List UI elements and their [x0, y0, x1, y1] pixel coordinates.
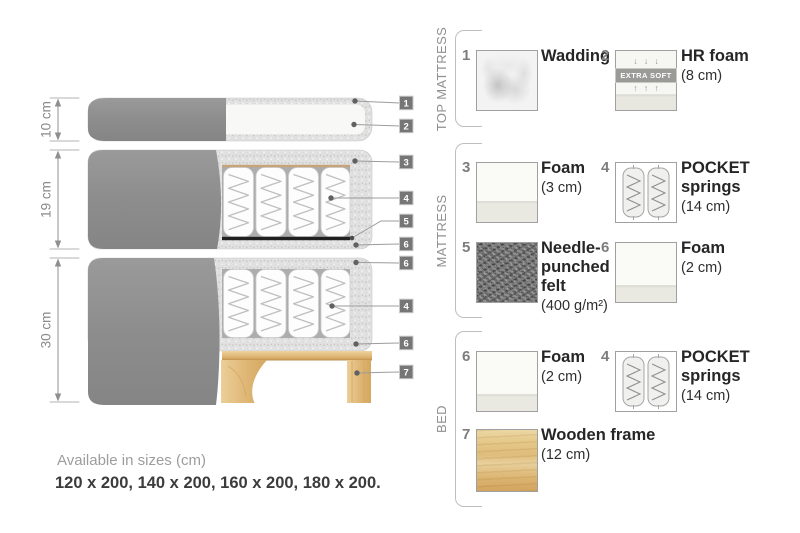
- fabric-cover-mattress: [88, 150, 221, 249]
- section-label-top-mattress: TOP MATTRESS: [434, 19, 450, 139]
- svg-text:2: 2: [404, 122, 409, 133]
- swatch-felt: [476, 242, 538, 303]
- swatch-pocket-springs: [615, 351, 677, 412]
- dimension-10cm: 10 cm: [39, 98, 80, 141]
- section-label-mattress: MATTRESS: [434, 171, 450, 291]
- wooden-leg-left: [221, 360, 267, 403]
- legend-name: POCKET springs: [681, 159, 761, 197]
- wooden-leg-right: [347, 360, 371, 403]
- legend-item-pocket-springs: POCKET springs (14 cm): [681, 159, 761, 217]
- wooden-frame-drawing: [221, 351, 372, 403]
- dimension-label-30cm: 30 cm: [39, 312, 54, 349]
- extra-soft-badge: EXTRA SOFT: [615, 68, 676, 83]
- swatch-foam-2cm: [615, 242, 677, 303]
- available-sizes-title: Available in sizes (cm): [57, 452, 206, 469]
- swatch-pocket-springs: [615, 162, 677, 223]
- svg-text:7: 7: [404, 368, 409, 379]
- dimension-label-19cm: 19 cm: [39, 181, 54, 218]
- section-label-bed: BED: [434, 359, 450, 479]
- legend-size: (12 cm): [541, 447, 711, 464]
- felt-layer-line: [222, 237, 350, 240]
- swatch-wadding: [476, 50, 538, 111]
- legend-number-5: 5: [462, 240, 470, 255]
- swatch-foam-3cm: [476, 162, 538, 223]
- svg-text:6: 6: [404, 240, 409, 251]
- legend-size: (400 g/m²): [541, 298, 609, 315]
- dimension-19cm: 19 cm: [39, 150, 80, 249]
- legend-name: POCKET springs: [681, 348, 761, 386]
- legend-number-6: 6: [601, 240, 609, 255]
- legend-name: Wooden frame: [541, 426, 711, 445]
- extra-soft-stack: ↓ ↓ ↓ EXTRA SOFT ↑ ↑ ↑: [616, 51, 676, 94]
- arrows-down-icon: ↓ ↓ ↓: [631, 57, 660, 67]
- dimension-30cm: 30 cm: [39, 258, 80, 402]
- legend-name: Needle-punched felt: [541, 239, 609, 296]
- svg-text:4: 4: [404, 302, 410, 313]
- svg-text:6: 6: [404, 339, 409, 350]
- legend-size: (14 cm): [681, 388, 761, 405]
- legend-number-4b: 4: [601, 349, 609, 364]
- available-sizes-list: 120 x 200, 140 x 200, 160 x 200, 180 x 2…: [55, 474, 381, 493]
- legend-item-wooden-frame: Wooden frame (12 cm): [541, 426, 711, 465]
- legend-size: (3 cm): [541, 180, 611, 197]
- swatch-hr-foam: ↓ ↓ ↓ EXTRA SOFT ↑ ↑ ↑: [615, 50, 677, 111]
- legend-size: (2 cm): [681, 260, 761, 277]
- legend-number-4: 4: [601, 160, 609, 175]
- pocket-springs-icon: [616, 352, 676, 411]
- bed-base-drawing: [88, 258, 372, 405]
- legend-number-7: 7: [462, 427, 470, 442]
- legend-size: (14 cm): [681, 199, 761, 216]
- svg-text:4: 4: [404, 194, 410, 205]
- legend-item-hr-foam: HR foam (8 cm): [681, 47, 781, 86]
- svg-text:3: 3: [404, 158, 409, 169]
- top-mattress-drawing: [88, 98, 372, 141]
- tan-layer-line: [222, 165, 350, 167]
- dimension-label-10cm: 10 cm: [39, 101, 54, 138]
- svg-text:5: 5: [404, 217, 410, 228]
- fabric-cover-top-mattress: [88, 98, 226, 141]
- svg-text:1: 1: [404, 99, 410, 110]
- arrows-up-icon: ↑ ↑ ↑: [631, 84, 660, 94]
- legend-item-pocket-springs-bed: POCKET springs (14 cm): [681, 348, 761, 406]
- legend-number-3: 3: [462, 160, 470, 175]
- legend-size: (8 cm): [681, 68, 781, 85]
- legend-size: (2 cm): [541, 369, 611, 386]
- swatch-wooden-frame: [476, 429, 538, 492]
- legend-name: Foam: [681, 239, 761, 258]
- pocket-springs-icon: [616, 163, 676, 222]
- fabric-cover-bed: [88, 258, 220, 405]
- bed-construction-infographic: 10 cm 19 cm 30 cm: [0, 0, 800, 533]
- legend-name: HR foam: [681, 47, 781, 66]
- legend-item-felt: Needle-punched felt (400 g/m²): [541, 239, 609, 316]
- legend-number-6b: 6: [462, 349, 470, 364]
- legend-number-1: 1: [462, 48, 470, 63]
- swatch-foam-2cm: [476, 351, 538, 412]
- legend-number-2: 2: [601, 48, 609, 63]
- legend-item-foam-2cm: Foam (2 cm): [681, 239, 761, 278]
- svg-text:6: 6: [404, 259, 409, 270]
